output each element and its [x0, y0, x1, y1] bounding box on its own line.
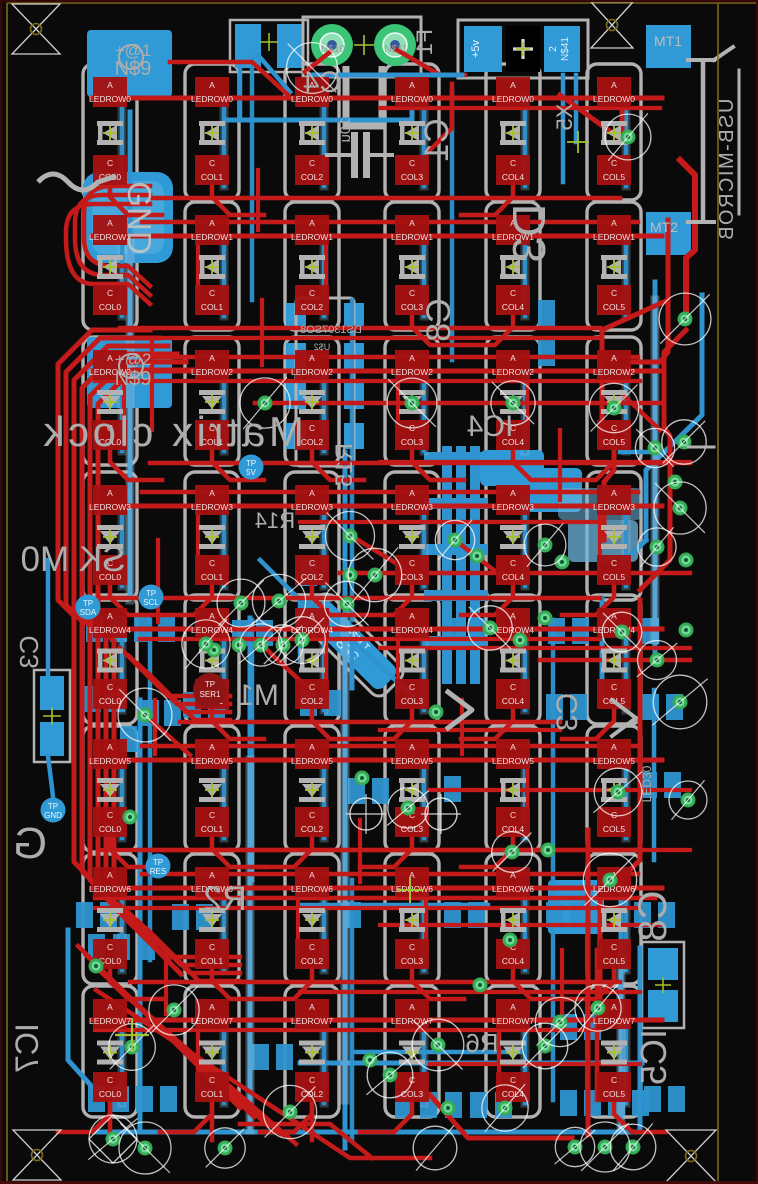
svg-text:COL1: COL1 — [201, 956, 223, 966]
svg-text:LEDROW5: LEDROW5 — [391, 756, 433, 766]
svg-text:LEDROW4: LEDROW4 — [191, 625, 233, 635]
svg-text:C: C — [309, 158, 315, 168]
svg-text:C: C — [309, 682, 315, 692]
svg-text:A: A — [209, 218, 215, 228]
svg-text:A: A — [510, 488, 516, 498]
svg-text:LEDROW2: LEDROW2 — [391, 367, 433, 377]
svg-text:LEDROW2: LEDROW2 — [492, 367, 534, 377]
svg-text:IC5: IC5 — [633, 1029, 674, 1085]
svg-text:LEDROW3: LEDROW3 — [89, 502, 131, 512]
svg-text:A: A — [611, 218, 617, 228]
svg-text:LEDROW6: LEDROW6 — [291, 884, 333, 894]
svg-text:C: C — [510, 158, 516, 168]
svg-text:LEDROW2: LEDROW2 — [291, 367, 333, 377]
svg-text:COL4: COL4 — [502, 302, 524, 312]
svg-text:COL1: COL1 — [201, 172, 223, 182]
svg-text:A: A — [409, 611, 415, 621]
svg-text:LEDROW3: LEDROW3 — [191, 502, 233, 512]
svg-text:COL5: COL5 — [603, 572, 625, 582]
svg-text:C: C — [409, 558, 415, 568]
svg-text:A: A — [409, 742, 415, 752]
svg-text:COL5: COL5 — [603, 172, 625, 182]
svg-text:C: C — [611, 942, 617, 952]
svg-text:A: A — [309, 218, 315, 228]
svg-text:C: C — [611, 1075, 617, 1085]
svg-text:C: C — [409, 682, 415, 692]
svg-text:+5v: +5v — [470, 39, 482, 58]
svg-text:C: C — [107, 942, 113, 952]
svg-text:LEDROW4: LEDROW4 — [391, 625, 433, 635]
svg-text:A: A — [107, 742, 113, 752]
svg-text:A: A — [309, 870, 315, 880]
svg-text:G: G — [13, 819, 47, 868]
svg-text:A: A — [611, 80, 617, 90]
svg-text:A: A — [209, 870, 215, 880]
svg-text:SDA: SDA — [80, 608, 97, 617]
svg-text:M1: M1 — [237, 679, 279, 712]
svg-text:A: A — [309, 488, 315, 498]
svg-text:C: C — [611, 158, 617, 168]
svg-text:COL3: COL3 — [401, 572, 423, 582]
svg-text:C: C — [510, 682, 516, 692]
svg-text:LEDROW7: LEDROW7 — [492, 1016, 534, 1026]
svg-text:A: A — [209, 80, 215, 90]
svg-text:LEDROW3: LEDROW3 — [391, 502, 433, 512]
svg-text:C: C — [611, 682, 617, 692]
svg-text:C: C — [611, 558, 617, 568]
svg-text:C: C — [309, 558, 315, 568]
svg-text:TP: TP — [83, 599, 93, 608]
svg-text:R2: R2 — [203, 880, 246, 918]
svg-text:A: A — [510, 80, 516, 90]
svg-text:A: A — [209, 1002, 215, 1012]
svg-text:COL2: COL2 — [301, 824, 323, 834]
svg-text:USB-MICROB: USB-MICROB — [716, 99, 738, 242]
svg-text:LEDROW3: LEDROW3 — [492, 502, 534, 512]
svg-text:COL2: COL2 — [301, 172, 323, 182]
svg-text:GND: GND — [121, 181, 158, 254]
svg-text:C: C — [309, 942, 315, 952]
svg-text:A: A — [309, 742, 315, 752]
svg-text:COL4: COL4 — [502, 956, 524, 966]
svg-text:IC4: IC4 — [467, 410, 514, 443]
svg-text:A: A — [107, 353, 113, 363]
svg-text:LEDROW4: LEDROW4 — [492, 625, 534, 635]
svg-text:C: C — [309, 288, 315, 298]
svg-text:COL1: COL1 — [201, 572, 223, 582]
svg-text:C: C — [510, 558, 516, 568]
svg-text:A: A — [611, 488, 617, 498]
svg-text:COL2: COL2 — [301, 956, 323, 966]
svg-text:A: A — [107, 1002, 113, 1012]
svg-text:LEDROW0: LEDROW0 — [593, 94, 635, 104]
svg-text:COL0: COL0 — [99, 696, 121, 706]
svg-text:A: A — [209, 353, 215, 363]
svg-text:COL0: COL0 — [99, 1089, 121, 1099]
svg-text:COL4: COL4 — [502, 696, 524, 706]
svg-text:X5: X5 — [552, 104, 577, 131]
svg-text:COL5: COL5 — [603, 302, 625, 312]
svg-text:LEDROW1: LEDROW1 — [191, 232, 233, 242]
svg-text:C: C — [209, 810, 215, 820]
svg-text:LEDROW0: LEDROW0 — [391, 94, 433, 104]
svg-text:TP: TP — [205, 680, 215, 689]
svg-text:COL1: COL1 — [201, 302, 223, 312]
svg-text:LEDROW2: LEDROW2 — [593, 367, 635, 377]
svg-text:A: A — [409, 488, 415, 498]
svg-text:A: A — [309, 353, 315, 363]
svg-text:C: C — [107, 158, 113, 168]
svg-text:COL1: COL1 — [201, 824, 223, 834]
svg-text:SK M0: SK M0 — [20, 540, 125, 579]
svg-text:10u: 10u — [337, 117, 354, 142]
svg-text:LEDROW5: LEDROW5 — [89, 756, 131, 766]
svg-text:LEDROW5: LEDROW5 — [291, 756, 333, 766]
svg-text:TP: TP — [146, 589, 156, 598]
svg-text:LEDROW4: LEDROW4 — [89, 625, 131, 635]
svg-text:LEDROW1: LEDROW1 — [291, 232, 333, 242]
svg-text:C: C — [409, 942, 415, 952]
svg-text:LEDROW0: LEDROW0 — [89, 94, 131, 104]
svg-text:A: A — [107, 218, 113, 228]
svg-text:C8: C8 — [420, 298, 458, 341]
svg-text:C: C — [309, 423, 315, 433]
svg-text:C: C — [510, 1075, 516, 1085]
svg-text:A: A — [510, 742, 516, 752]
svg-text:C4: C4 — [303, 66, 341, 99]
svg-text:A: A — [611, 353, 617, 363]
svg-text:COL5: COL5 — [603, 956, 625, 966]
svg-text:A: A — [209, 488, 215, 498]
svg-text:LEDROW3: LEDROW3 — [291, 502, 333, 512]
svg-text:C: C — [107, 810, 113, 820]
svg-text:COL3: COL3 — [401, 956, 423, 966]
svg-text:LEDROW5: LEDROW5 — [593, 756, 635, 766]
svg-text:LEDROW6: LEDROW6 — [492, 884, 534, 894]
svg-text:TP: TP — [153, 858, 163, 867]
svg-text:C: C — [107, 288, 113, 298]
svg-text:COL3: COL3 — [401, 172, 423, 182]
svg-text:LEDROW6: LEDROW6 — [89, 884, 131, 894]
svg-text:A: A — [209, 611, 215, 621]
svg-text:C: C — [611, 423, 617, 433]
svg-text:D3: D3 — [503, 204, 555, 263]
svg-text:LEDROW2: LEDROW2 — [191, 367, 233, 377]
svg-text:A: A — [611, 742, 617, 752]
svg-text:C: C — [209, 558, 215, 568]
svg-text:A: A — [409, 353, 415, 363]
svg-text:C: C — [409, 288, 415, 298]
svg-text:C: C — [107, 682, 113, 692]
svg-text:R14: R14 — [255, 508, 295, 533]
svg-text:SCL: SCL — [143, 598, 159, 607]
svg-text:COL3: COL3 — [401, 1089, 423, 1099]
svg-text:A: A — [611, 1002, 617, 1012]
svg-text:COL3: COL3 — [401, 824, 423, 834]
svg-text:A: A — [409, 218, 415, 228]
svg-text:COL4: COL4 — [502, 172, 524, 182]
svg-text:LEDROW3: LEDROW3 — [593, 502, 635, 512]
svg-text:C1: C1 — [418, 118, 456, 161]
svg-text:A: A — [309, 1002, 315, 1012]
svg-text:N$41: N$41 — [560, 37, 571, 61]
svg-text:C: C — [209, 158, 215, 168]
svg-text:A: A — [409, 80, 415, 90]
svg-text:A: A — [409, 1002, 415, 1012]
svg-text:COL0: COL0 — [99, 302, 121, 312]
svg-text:LEDROW5: LEDROW5 — [191, 756, 233, 766]
svg-text:TP: TP — [48, 802, 58, 811]
svg-text:C: C — [107, 1075, 113, 1085]
svg-text:C: C — [209, 942, 215, 952]
svg-text:A: A — [510, 353, 516, 363]
svg-text:LEDROW1: LEDROW1 — [593, 232, 635, 242]
svg-text:COL3: COL3 — [401, 696, 423, 706]
svg-text:2: 2 — [548, 46, 559, 52]
svg-text:C: C — [510, 288, 516, 298]
svg-text:LEDROW1: LEDROW1 — [391, 232, 433, 242]
svg-text:U$2: U$2 — [314, 342, 331, 352]
svg-text:COL4: COL4 — [502, 572, 524, 582]
svg-text:C: C — [409, 158, 415, 168]
svg-text:A: A — [510, 1002, 516, 1012]
svg-text:C: C — [209, 288, 215, 298]
svg-text:5V: 5V — [246, 468, 256, 477]
svg-text:A: A — [209, 742, 215, 752]
svg-text:Matrix clock: Matrix clock — [40, 408, 304, 455]
svg-text:COL0: COL0 — [99, 824, 121, 834]
svg-text:LED30: LED30 — [640, 765, 654, 802]
svg-text:IC7: IC7 — [9, 1023, 45, 1073]
svg-text:LEDROW5: LEDROW5 — [492, 756, 534, 766]
svg-text:A: A — [107, 80, 113, 90]
svg-text:MT1: MT1 — [654, 33, 682, 49]
svg-text:COL5: COL5 — [603, 437, 625, 447]
svg-text:R6: R6 — [465, 1028, 498, 1058]
svg-text:COL3: COL3 — [401, 437, 423, 447]
svg-text:A: A — [107, 611, 113, 621]
svg-text:LEDROW0: LEDROW0 — [191, 94, 233, 104]
svg-text:C: C — [611, 288, 617, 298]
svg-text:COL2: COL2 — [301, 696, 323, 706]
svg-text:DS1307SO8: DS1307SO8 — [300, 324, 362, 336]
svg-text:R15: R15 — [331, 443, 358, 487]
svg-text:A: A — [107, 870, 113, 880]
svg-text:COL1: COL1 — [201, 1089, 223, 1099]
svg-text:C: C — [309, 1075, 315, 1085]
svg-text:COL2: COL2 — [301, 302, 323, 312]
svg-text:COL5: COL5 — [603, 824, 625, 834]
svg-text:COL5: COL5 — [603, 1089, 625, 1099]
svg-text:C3: C3 — [551, 693, 584, 731]
svg-text:C: C — [209, 1075, 215, 1085]
svg-text:MT2: MT2 — [650, 219, 678, 235]
svg-text:C3: C3 — [14, 635, 44, 668]
svg-text:C: C — [510, 810, 516, 820]
svg-text:LEDROW7: LEDROW7 — [291, 1016, 333, 1026]
svg-text:RES: RES — [150, 867, 166, 876]
svg-text:F1: F1 — [412, 29, 437, 55]
svg-text:C: C — [309, 810, 315, 820]
svg-text:C8: C8 — [631, 890, 675, 941]
svg-text:LEDROW0: LEDROW0 — [492, 94, 534, 104]
svg-text:SER1: SER1 — [200, 690, 221, 699]
svg-text:TP: TP — [246, 459, 256, 468]
svg-text:A: A — [107, 488, 113, 498]
